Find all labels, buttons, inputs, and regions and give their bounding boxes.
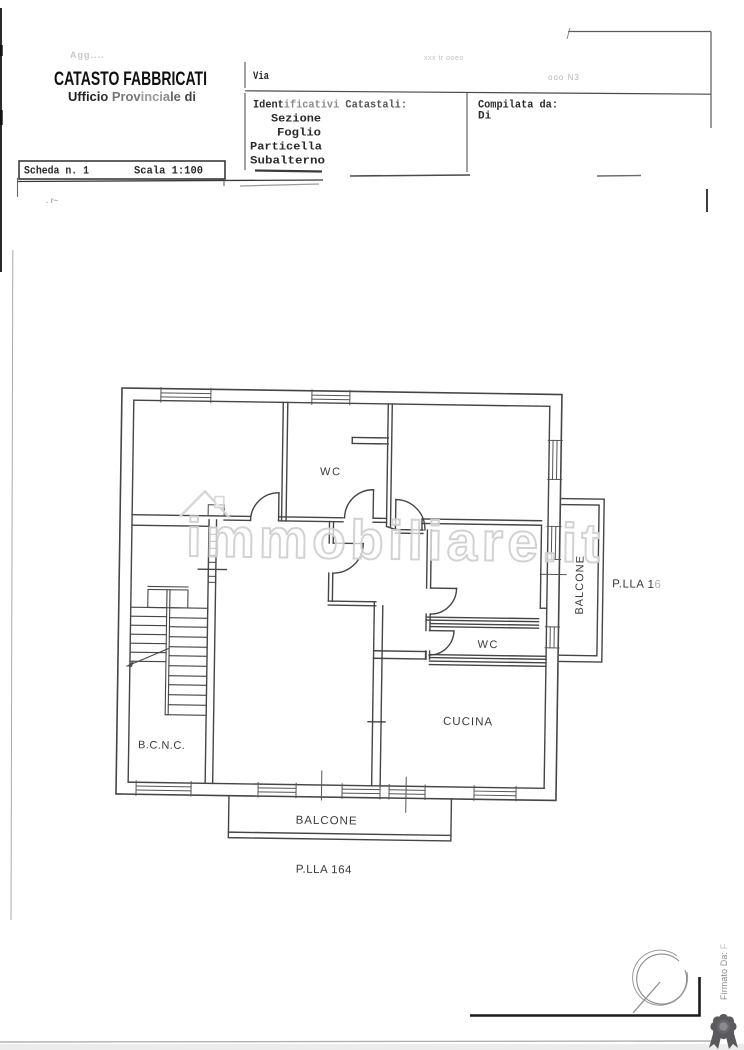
svg-text:Particella: Particella [250, 142, 322, 154]
svg-text:Scheda n. 1: Scheda n. 1 [24, 166, 89, 178]
svg-text:Sezione: Sezione [271, 114, 321, 126]
svg-text:CUCINA: CUCINA [443, 716, 493, 729]
svg-text:ooo N3: ooo N3 [548, 73, 580, 82]
svg-text:B.C.N.C.: B.C.N.C. [138, 739, 186, 752]
svg-text:Identificativi Catastali:: Identificativi Catastali: [253, 100, 407, 112]
svg-text:Scala 1:100: Scala 1:100 [134, 166, 203, 178]
svg-text:Agg....: Agg.... [70, 50, 105, 60]
svg-text:xxx tr ooeo: xxx tr ooeo [424, 55, 464, 62]
svg-text:WC: WC [477, 639, 499, 651]
svg-text:Via: Via [253, 71, 269, 83]
svg-text:P.LLA 164: P.LLA 164 [296, 864, 352, 877]
svg-text:WC: WC [320, 466, 342, 478]
svg-text:Ufficio Provinciale di: Ufficio Provinciale di [68, 89, 196, 104]
svg-text:immobiliare.it: immobiliare.it [186, 506, 605, 574]
svg-text:Subalterno: Subalterno [250, 156, 325, 168]
svg-text:Foglio: Foglio [277, 128, 321, 140]
svg-text:Di: Di [478, 111, 492, 123]
svg-text:P.LLA 16: P.LLA 16 [612, 578, 661, 591]
svg-text:CATASTO FABBRICATI: CATASTO FABBRICATI [54, 69, 207, 90]
svg-text:BALCONE: BALCONE [296, 815, 358, 828]
svg-text:Firmato Da: F: Firmato Da: F [719, 943, 729, 1000]
svg-text:. r~: . r~ [46, 196, 59, 205]
